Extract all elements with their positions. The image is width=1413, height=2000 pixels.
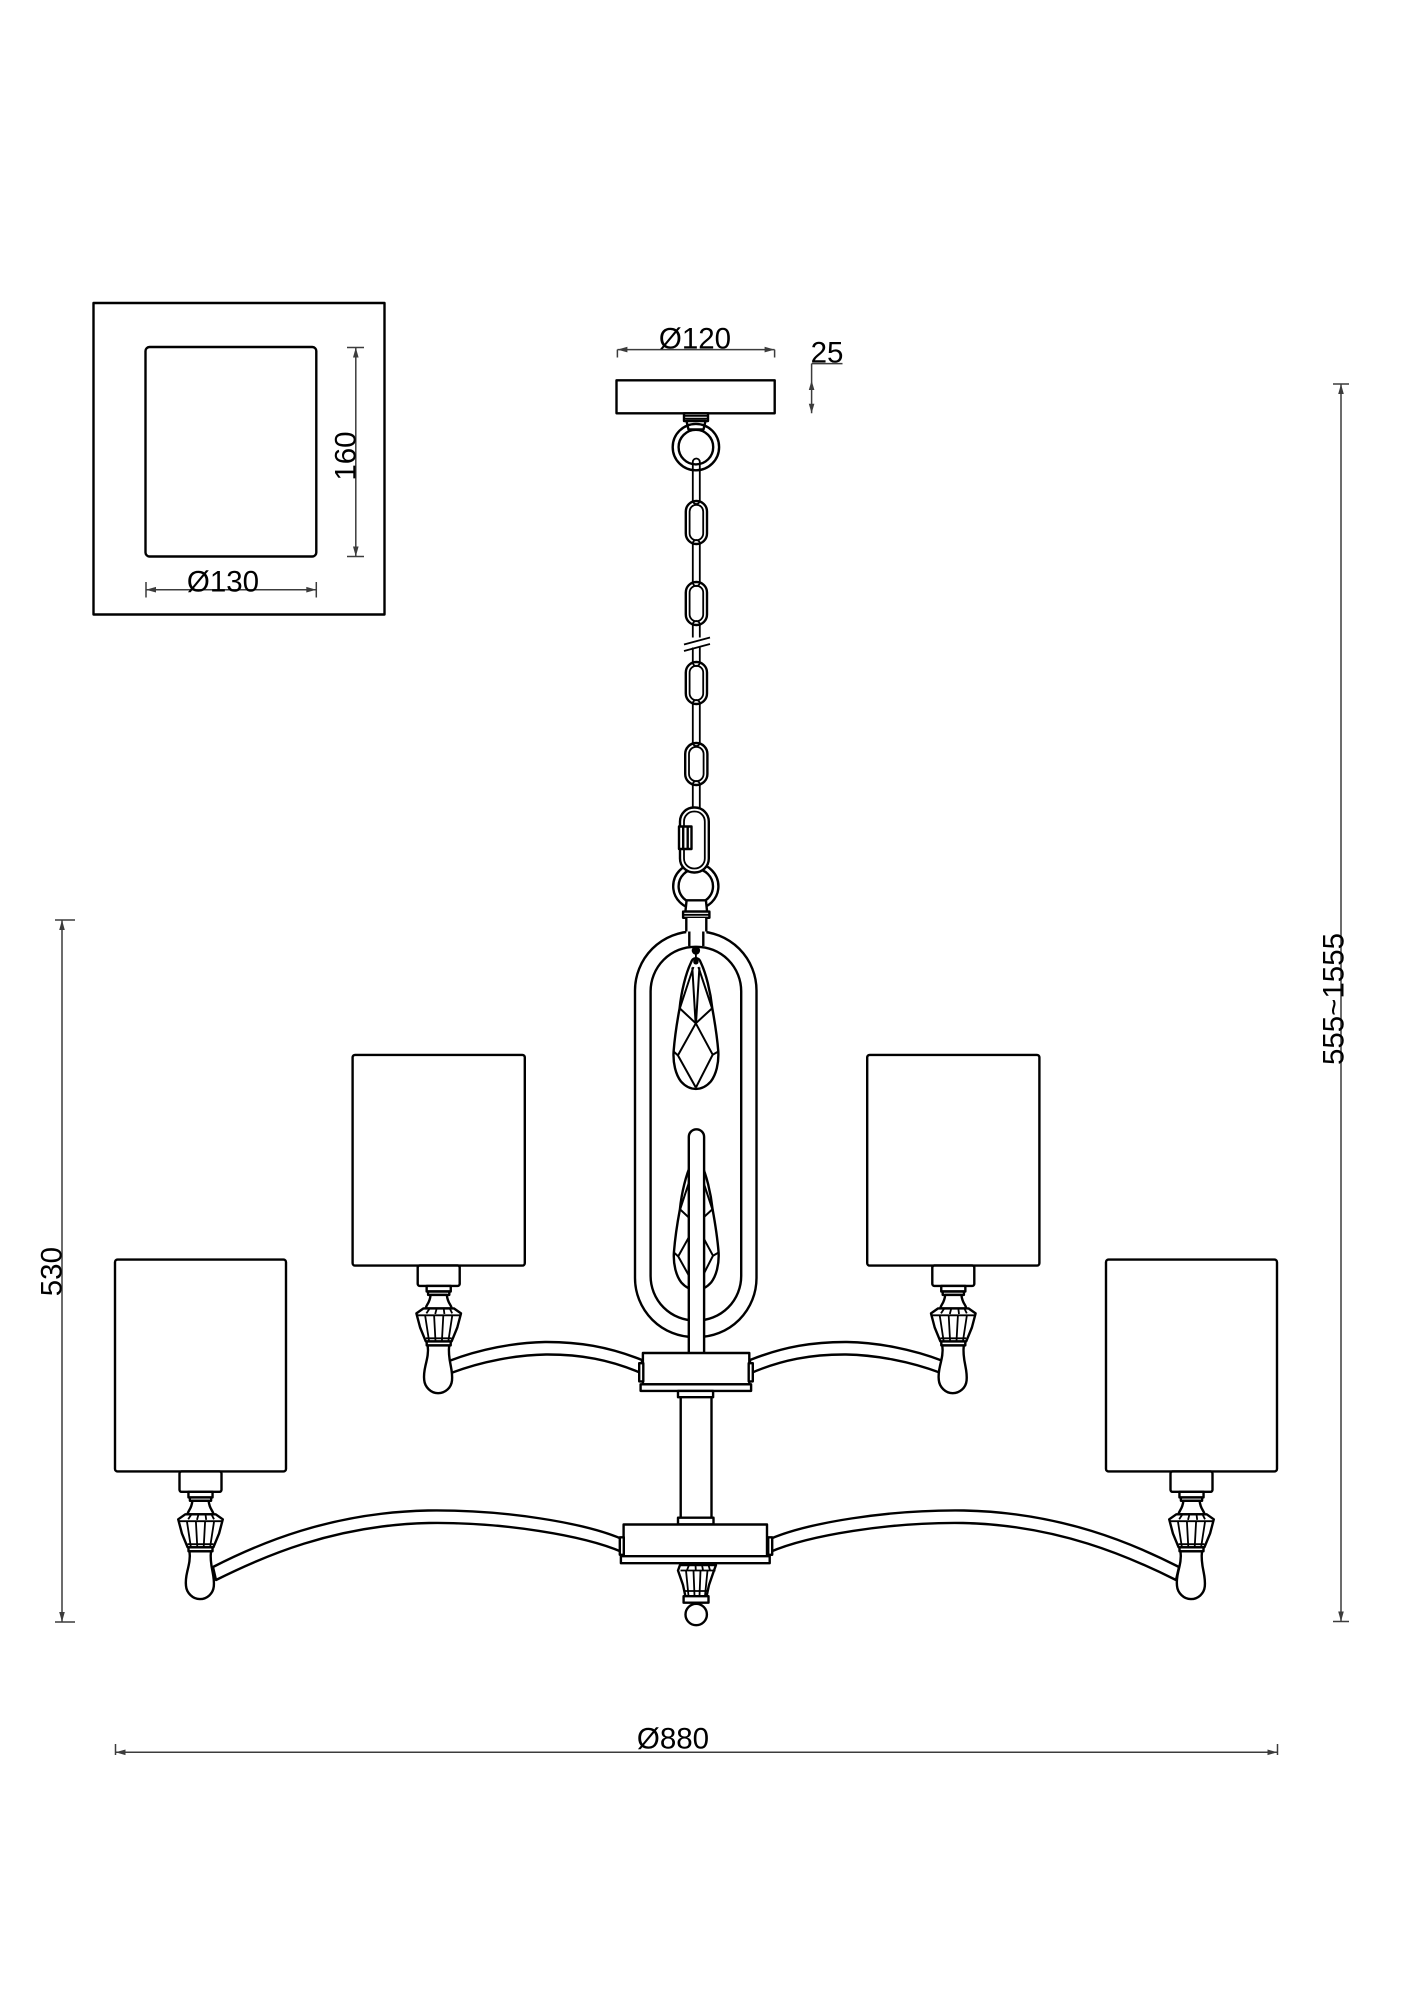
svg-text:160: 160 bbox=[330, 431, 363, 480]
svg-text:Ø130: Ø130 bbox=[187, 566, 259, 599]
svg-text:555~1555: 555~1555 bbox=[1318, 933, 1351, 1065]
svg-text:530: 530 bbox=[36, 1247, 69, 1296]
svg-text:Ø120: Ø120 bbox=[659, 322, 731, 355]
svg-text:Ø880: Ø880 bbox=[637, 1722, 709, 1755]
svg-text:25: 25 bbox=[811, 336, 844, 369]
